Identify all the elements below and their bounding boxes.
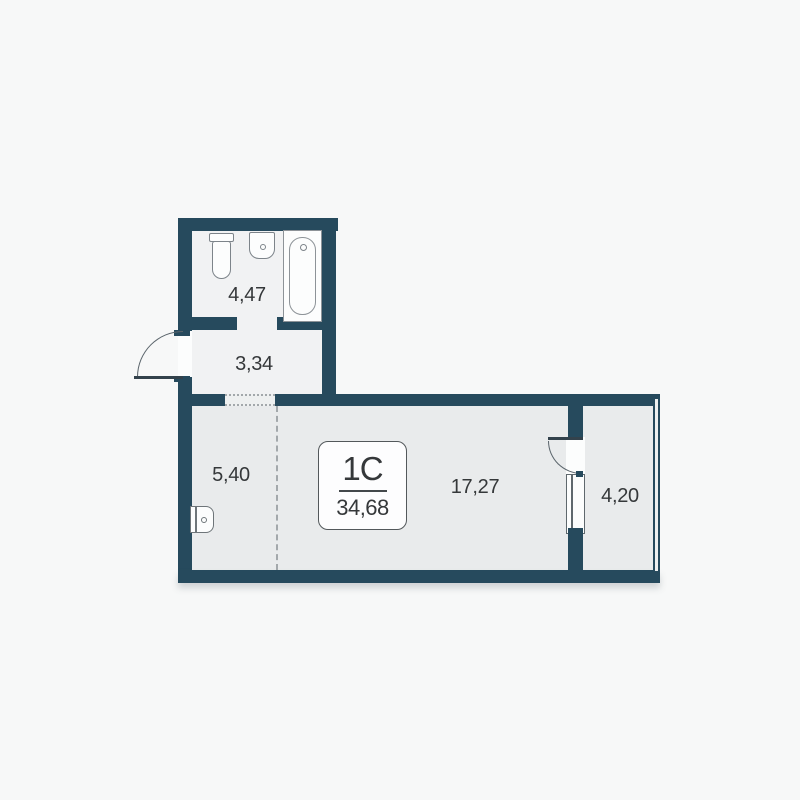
kitchen-zone-divider-dashed [276, 406, 278, 570]
sink-icon [249, 232, 275, 259]
hallway-open-threshold [225, 394, 275, 406]
bathroom-bottom-wall-left [192, 317, 237, 330]
room-label-living-area: 17,27 [451, 477, 500, 497]
floor-plan: 4,47 3,34 5,40 17,27 4,20 1С 34,68 [0, 0, 800, 800]
balcony-door-leaf-icon [548, 437, 583, 440]
bathtub-basin-icon [289, 237, 316, 315]
bathtub-icon [283, 230, 322, 322]
bathroom-doorway-floor [237, 317, 277, 330]
kitchen-sink-drain-icon [201, 517, 207, 523]
window-glazing-line [571, 475, 573, 533]
balcony-divider-wall-top [568, 405, 583, 437]
window-stub-top [576, 471, 583, 477]
unit-type-label: 1С [342, 452, 382, 487]
room-label-kitchen-niche: 5,40 [212, 465, 250, 485]
window-stub-bottom [568, 528, 583, 534]
unit-total-area-label: 34,68 [336, 496, 389, 519]
sink-drain-icon [260, 244, 266, 250]
toilet-icon [212, 241, 231, 279]
left-wall-lower [178, 377, 192, 583]
bottom-wall [178, 570, 660, 583]
main-top-wall [275, 394, 660, 406]
kitchen-sink-icon [190, 506, 214, 533]
room-label-hallway: 3,34 [235, 354, 273, 374]
unit-badge-divider [339, 490, 387, 492]
bathtub-drain-icon [300, 244, 307, 251]
balcony-outer-wall [653, 399, 660, 571]
hallway-bottom-wall-left [192, 394, 225, 406]
unit-badge: 1С 34,68 [318, 441, 407, 530]
entrance-door-leaf-icon [134, 376, 183, 379]
left-wall-upper [178, 218, 192, 331]
bathroom-right-wall [322, 218, 336, 406]
room-label-bathroom: 4,47 [228, 285, 266, 305]
kitchen-sink-edge-line [195, 507, 197, 532]
room-label-balcony: 4,20 [601, 486, 639, 506]
balcony-window-icon [566, 474, 585, 534]
entrance-door-arc-icon [137, 331, 183, 377]
balcony-divider-wall-bottom [568, 533, 583, 571]
